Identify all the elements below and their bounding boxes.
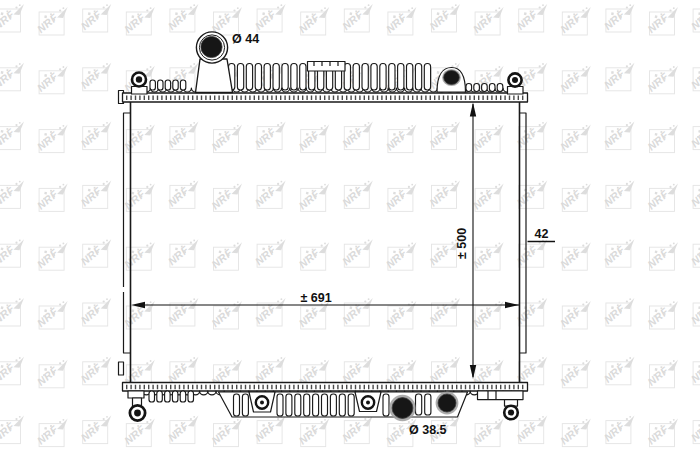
- top-tank-ribs-right: [466, 84, 503, 92]
- drawing-canvas: NRF NRF NRF: [0, 0, 700, 460]
- label-inlet-diameter: Ø 44: [232, 32, 259, 46]
- inlet-port: [196, 32, 233, 93]
- bottom-tank-ribs-c: [383, 394, 389, 416]
- top-tank-ribs-left: [150, 80, 186, 90]
- dimension-width: ± 691: [131, 291, 519, 309]
- bottom-tank-ribs-b: [277, 394, 354, 416]
- bottom-tank: [123, 383, 528, 422]
- boss-ring-left: [249, 392, 275, 412]
- label-outlet-diameter: Ø 38.5: [409, 423, 447, 437]
- arrowhead-down-icon: [470, 365, 476, 379]
- mounting-pin-bottom-left: [128, 391, 145, 421]
- dimension-depth: 42: [528, 227, 556, 242]
- arrowhead-right-icon: [505, 302, 519, 308]
- label-height-dimension: ± 500: [455, 228, 469, 259]
- side-plate-left: [119, 91, 131, 392]
- boss-ring-right: [355, 392, 381, 412]
- top-tank: [123, 32, 528, 102]
- radiator-diagram: ± 691 ± 500 42 Ø 44 Ø 38.5: [0, 0, 700, 460]
- bottom-side-port: [436, 392, 459, 415]
- dimension-height: ± 500: [455, 103, 476, 380]
- side-plate-right: [520, 93, 527, 391]
- top-side-port: [437, 68, 466, 93]
- top-tank-clip-notch: [308, 62, 346, 72]
- arrowhead-up-icon: [470, 103, 476, 117]
- bottom-tank-ribs-left: [149, 391, 194, 402]
- label-depth-dimension: 42: [535, 227, 549, 241]
- mounting-pin-top-right: [508, 73, 524, 94]
- bottom-right-bracket: [478, 391, 524, 419]
- label-width-dimension: ± 691: [300, 291, 331, 305]
- outlet-port: [389, 395, 415, 421]
- mounting-pin-top-left: [132, 73, 148, 95]
- arrowhead-left-icon: [131, 302, 145, 308]
